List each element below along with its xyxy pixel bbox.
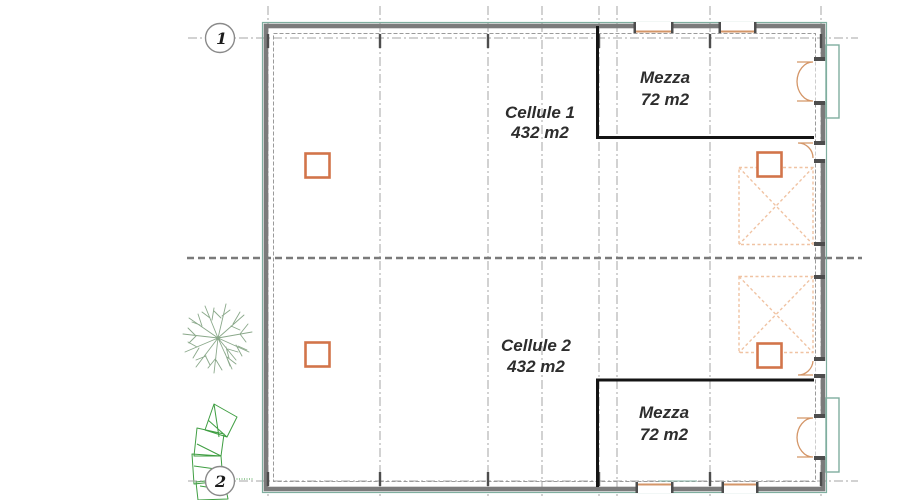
room-label-cellule1-name: Cellule 1 [505, 103, 575, 122]
structural-column-icon [758, 344, 782, 368]
grid-marker-2-label: 2 [214, 472, 226, 491]
door-swings [797, 62, 813, 457]
floor-plan-canvas: 1 2 Cellule 1 432 m2 Mezza 72 m2 Cellule… [0, 0, 900, 500]
floor-plan-page: 1 2 Cellule 1 432 m2 Mezza 72 m2 Cellule… [0, 0, 900, 500]
door-opening [816, 145, 826, 159]
mezzanine-1-wall [598, 26, 815, 138]
door-swing-icon [797, 418, 813, 457]
room-label-cellule2-name: Cellule 2 [501, 336, 571, 355]
room-label-mezza1-name: Mezza [640, 68, 690, 87]
door-swing-icon [797, 62, 813, 101]
deciduous-tree-icon [183, 304, 252, 373]
room-label-cellule1-area: 432 m2 [510, 123, 569, 142]
structural-column-icon [758, 153, 782, 177]
room-label-mezza2-area: 72 m2 [640, 425, 689, 444]
cross-reserved-zone-icon [739, 168, 813, 245]
door-swing-icon [798, 361, 813, 375]
grid-wall-ticks [268, 34, 821, 486]
cross-reserved-zone-icon [739, 277, 813, 353]
door-opening [816, 61, 826, 102]
door-opening [816, 418, 826, 457]
door-opening [816, 361, 826, 374]
structural-column-icon [306, 343, 330, 367]
room-label-mezza1-area: 72 m2 [641, 90, 690, 109]
room-label-mezza2-name: Mezza [639, 403, 689, 422]
grid-marker-1-label: 1 [216, 29, 227, 48]
exterior-canopy [826, 45, 839, 118]
grid-lines [187, 6, 862, 497]
door-swing-icon [798, 143, 813, 158]
mezzanine-2-wall [598, 380, 815, 487]
structural-column-icon [306, 154, 330, 178]
room-label-cellule2-area: 432 m2 [506, 357, 565, 376]
room-labels: Cellule 1 432 m2 Mezza 72 m2 Cellule 2 4… [501, 68, 690, 444]
grid-marker-1: 1 [206, 24, 235, 53]
exterior-canopy [826, 398, 839, 472]
grid-marker-2: 2 [206, 467, 235, 496]
